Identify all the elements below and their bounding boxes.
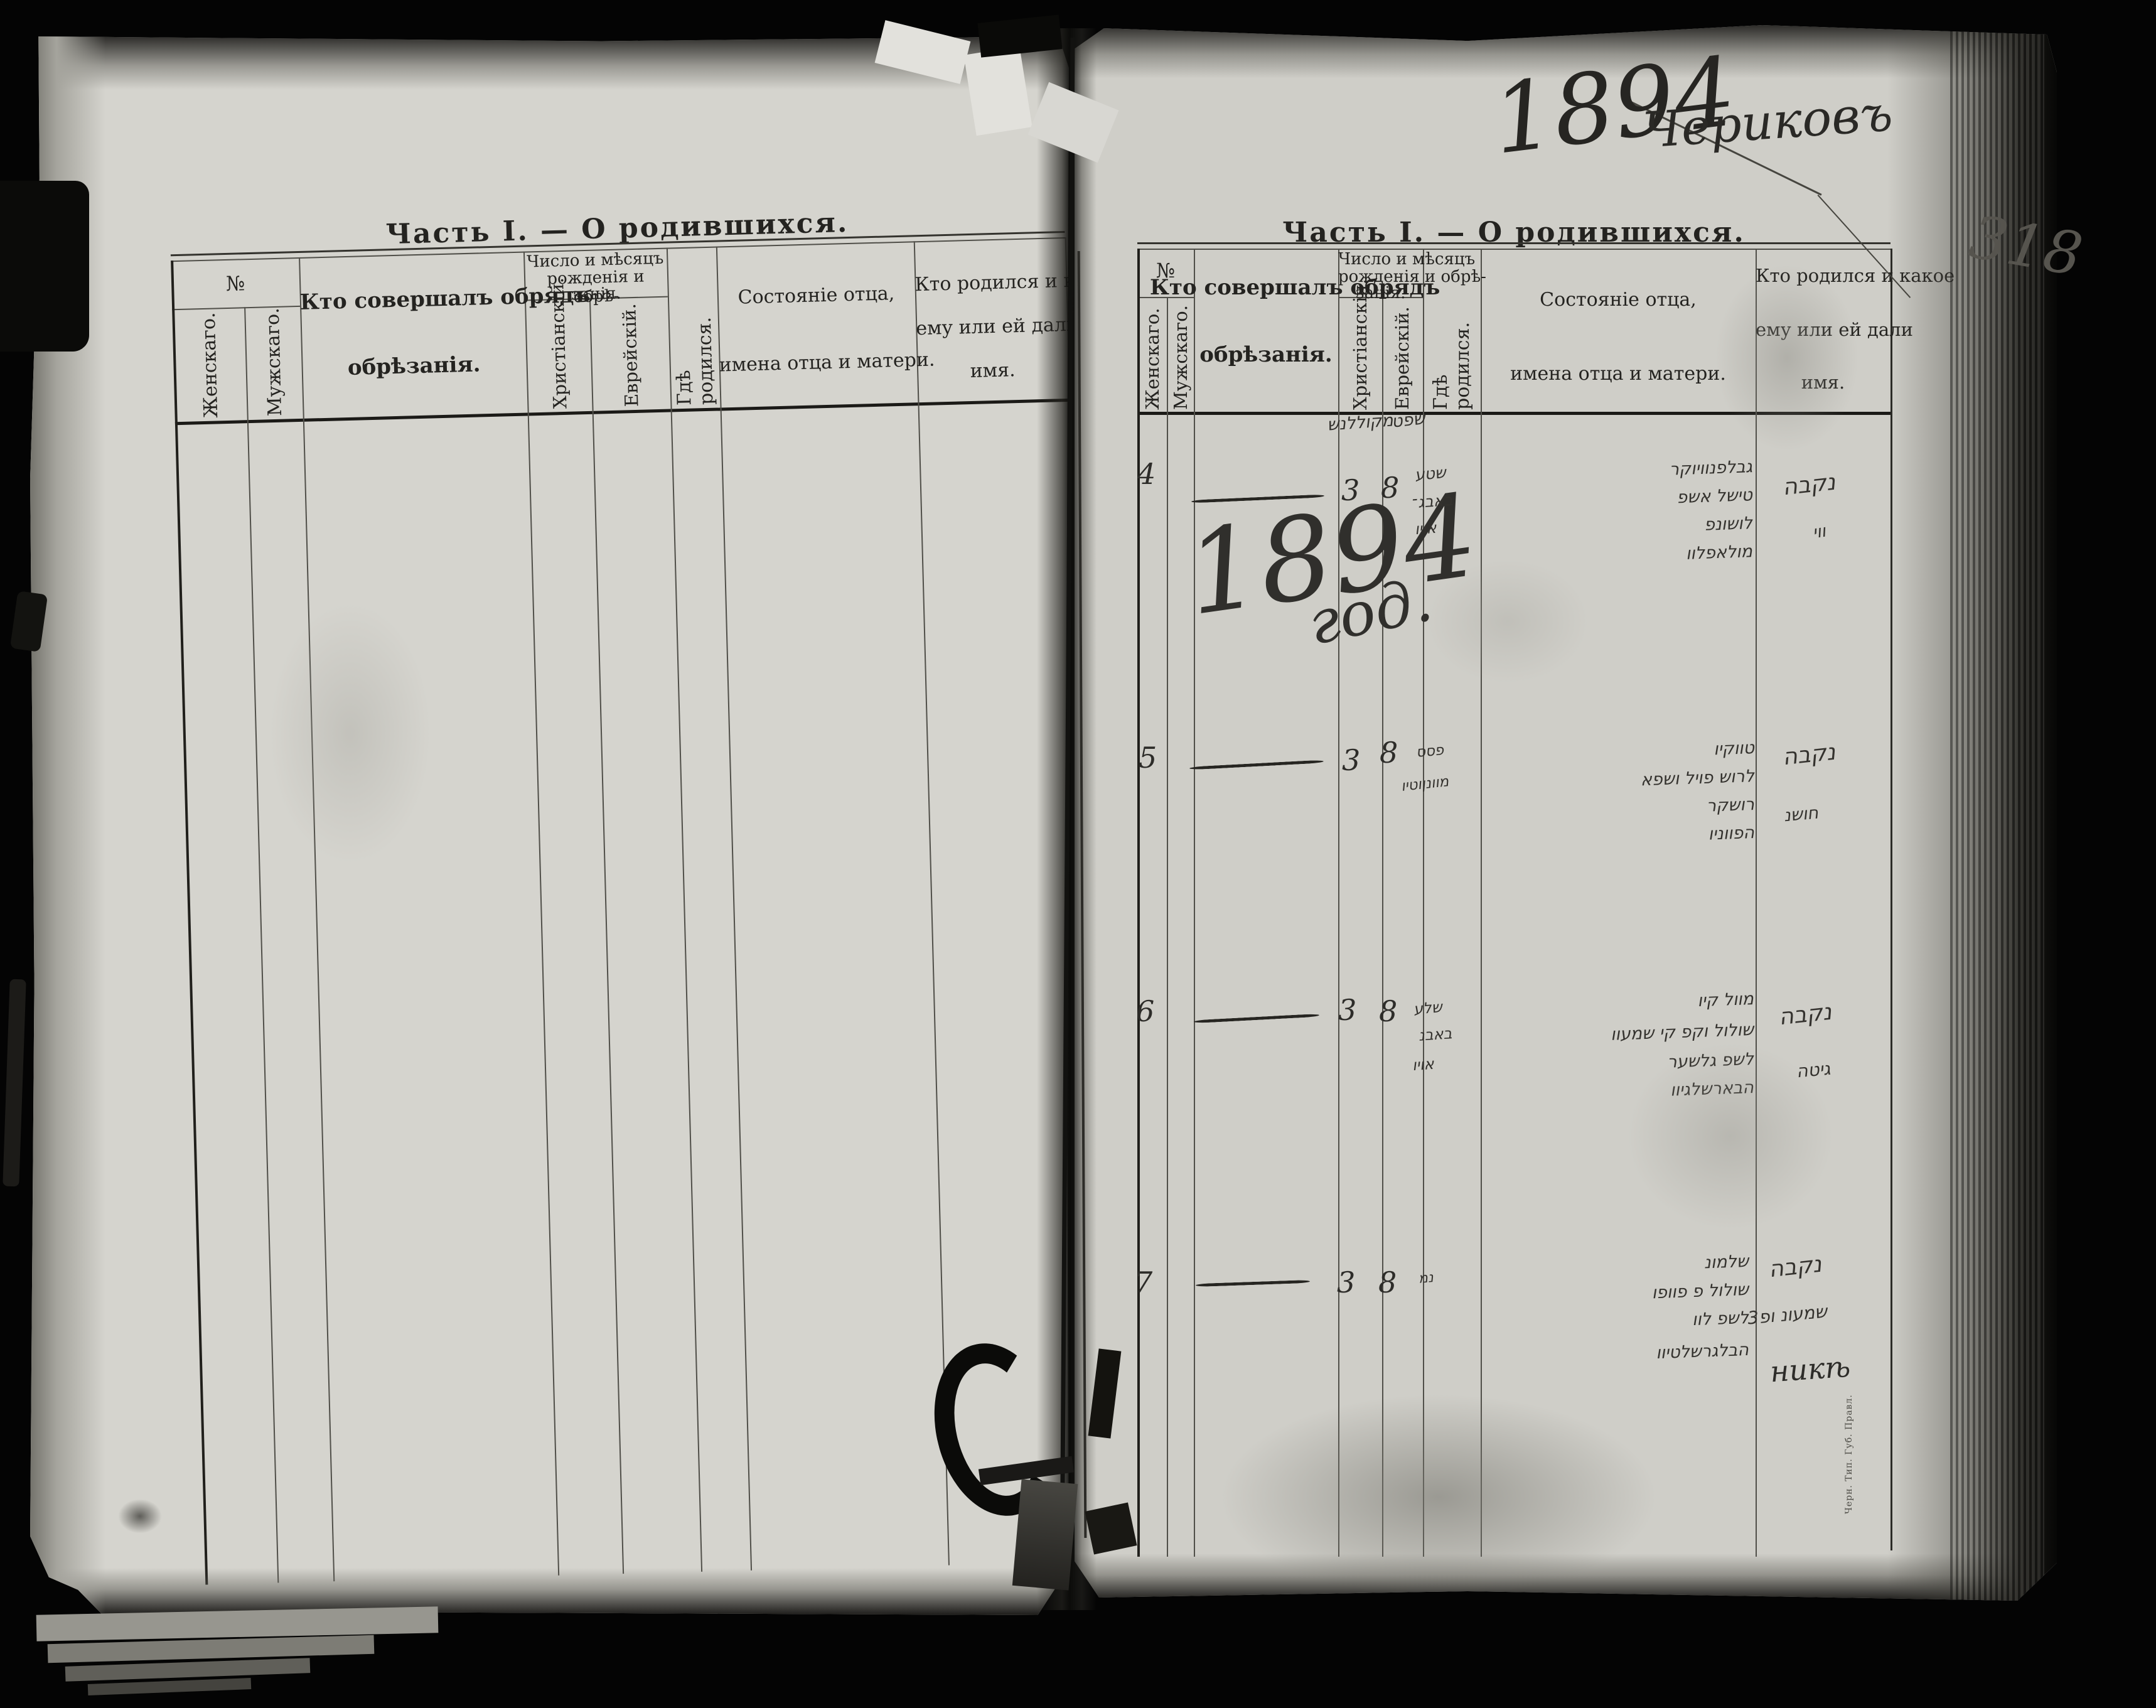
child-name-line: נקבה <box>1781 739 1837 771</box>
col-line <box>667 248 702 1572</box>
col-header-dates-1: Число и мѣсяцъ <box>1338 250 1423 269</box>
torn-page-edge <box>88 1678 251 1695</box>
col-header-jewish: Еврейскій. <box>616 299 645 407</box>
christian-day: 3 <box>1341 473 1360 507</box>
col-line <box>299 257 335 1581</box>
birthplace-line: פסס <box>1415 742 1444 761</box>
col-header-male: Мужскаго. <box>259 306 289 417</box>
col-line <box>1423 249 1424 1557</box>
father-line: רושקר <box>1613 795 1755 819</box>
father-line: לרוש פויל ושפא <box>1613 766 1755 791</box>
binder-clip <box>0 181 89 352</box>
col-header-male: Мужскаго. <box>1167 302 1194 410</box>
paper-stain <box>1219 1394 1658 1601</box>
blank-dash <box>1196 1280 1310 1287</box>
double-rule-bottom <box>1137 249 1891 250</box>
father-line: גבלפנוויוקר <box>1613 457 1753 481</box>
col-header-christian: Христіанскій. <box>544 301 573 409</box>
father-line: לשפ לוו <box>1603 1308 1749 1333</box>
child-name-line: נקבה <box>1781 470 1837 501</box>
entry-number: 7 <box>1134 1265 1152 1299</box>
father-line: טישל אשפ <box>1613 485 1753 510</box>
child-name-line: שמעונ ופ3 <box>1747 1301 1828 1329</box>
christian-day: 3 <box>1342 743 1360 777</box>
col-header-number: № <box>171 270 300 297</box>
father-line: הפווניו <box>1613 823 1755 847</box>
paper-stain <box>1627 1042 1834 1230</box>
blank-dash <box>1189 760 1324 770</box>
birthplace-line: אויו <box>1414 519 1437 538</box>
page-edge-shadow <box>30 1568 1069 1615</box>
col-header-father-2: имена отца и матери. <box>719 349 917 376</box>
birthplace-line: נמ <box>1418 1270 1434 1287</box>
blank-dash <box>1194 1014 1319 1023</box>
col-header-who-1: Кто совершалъ обрядъ <box>299 284 525 315</box>
month-note-jewish: שפט <box>1391 409 1426 431</box>
col-line <box>1167 297 1168 1557</box>
col-line <box>589 298 624 1574</box>
page-title: Часть I. — О родившихся. <box>170 201 1065 256</box>
father-line: מוול קיו <box>1609 989 1754 1014</box>
right-page: Часть I. — О родившихся. № Женскаго. Муж… <box>1075 25 2057 1601</box>
jewish-day: 8 <box>1380 736 1398 770</box>
table-border-left <box>171 260 208 1584</box>
birthplace-line: באבנ <box>1418 1024 1452 1045</box>
torn-page-edge <box>36 1606 439 1641</box>
paper-stain <box>269 601 432 865</box>
birthplace-line: מוונןוטיו <box>1400 773 1450 795</box>
left-page: Часть I. — О родившихся. № Женскаго. Муж… <box>30 36 1069 1615</box>
jewish-day: 8 <box>1378 1265 1397 1299</box>
birthplace-line: שלע <box>1413 998 1443 1018</box>
edge-debris <box>3 979 26 1187</box>
paper-stain <box>1426 559 1589 684</box>
father-line: שולול פ פוופו <box>1603 1280 1749 1304</box>
table-border-left <box>1137 249 1140 1557</box>
entry-number: 6 <box>1136 994 1154 1028</box>
torn-tape <box>1012 1479 1078 1590</box>
col-header-who-2: обрѣзанія. <box>301 351 527 382</box>
entry-number: 4 <box>1137 457 1156 491</box>
child-name-line: никѣ <box>1769 1350 1851 1389</box>
col-header-where-born: Гдѣ родился. <box>1439 295 1465 410</box>
col-line <box>914 241 950 1565</box>
col-line <box>1194 249 1195 1557</box>
col-line <box>1756 249 1757 1557</box>
col-line <box>716 246 752 1570</box>
col-header-female: Женскаго. <box>195 308 225 418</box>
col-header-father-2: имена отца и матери. <box>1481 363 1756 385</box>
father-line: שולול וקפ קי שמעוו <box>1609 1020 1754 1045</box>
father-line: שלמונ <box>1603 1252 1749 1276</box>
father-details: שלמונ שולול פ פוופו לשפ לוו הבלגרשלטיוו <box>1603 1254 1749 1371</box>
col-header-father-1: Состояніе отца, <box>1481 289 1756 311</box>
torn-tape <box>1085 1502 1137 1554</box>
col-header-who-2: обрѣзанія. <box>1194 342 1338 367</box>
col-header-father-1: Состояніе отца, <box>717 282 916 309</box>
ink-smudge <box>118 1499 162 1533</box>
month-note-christian: מקוללנש <box>1325 411 1395 435</box>
child-name-line: ווי <box>1811 522 1827 543</box>
double-rule-top <box>1137 242 1891 244</box>
col-line <box>244 307 279 1582</box>
child-name-line: חושנ <box>1783 803 1819 826</box>
col-header-christian: Христіанскій. <box>1347 302 1373 410</box>
col-line <box>523 252 559 1576</box>
father-line: טווקיו <box>1613 738 1755 763</box>
child-name-line: נקבה <box>1767 1252 1823 1283</box>
jewish-day: 8 <box>1381 471 1399 505</box>
child-name-line: נקבה <box>1778 999 1833 1031</box>
father-details: טווקיו לרוש פויל ושפא רושקר הפווניו <box>1613 741 1754 854</box>
col-line <box>1481 249 1482 1557</box>
printer-imprint: Черн. Тип. Губ. Правл. <box>1844 1394 1854 1514</box>
christian-day: 3 <box>1337 1265 1355 1299</box>
col-header-jewish: Еврейскій. <box>1389 302 1415 410</box>
col-line <box>1338 249 1339 1557</box>
book-scan: Часть I. — О родившихся. № Женскаго. Муж… <box>0 0 2156 1708</box>
birthplace-line: שטע <box>1414 463 1447 484</box>
birthplace-line: אויו <box>1412 1055 1434 1074</box>
col-header-female: Женскаго. <box>1139 302 1166 410</box>
father-line: מולאפלוו <box>1613 542 1753 566</box>
paper-stain <box>1715 264 1859 452</box>
col-header-where-born: Гдѣ родился. <box>679 284 709 406</box>
father-line: לושונפ <box>1613 513 1753 538</box>
birthplace-line: באבג־ <box>1412 491 1454 512</box>
father-line: הבלגרשלטיוו <box>1603 1340 1749 1365</box>
christian-day: 3 <box>1338 993 1356 1027</box>
father-details: גבלפנוויוקר טישל אשפ לושונפ מולאפלוו <box>1613 459 1752 572</box>
jewish-day: 8 <box>1379 994 1397 1028</box>
entry-number: 5 <box>1139 741 1157 775</box>
